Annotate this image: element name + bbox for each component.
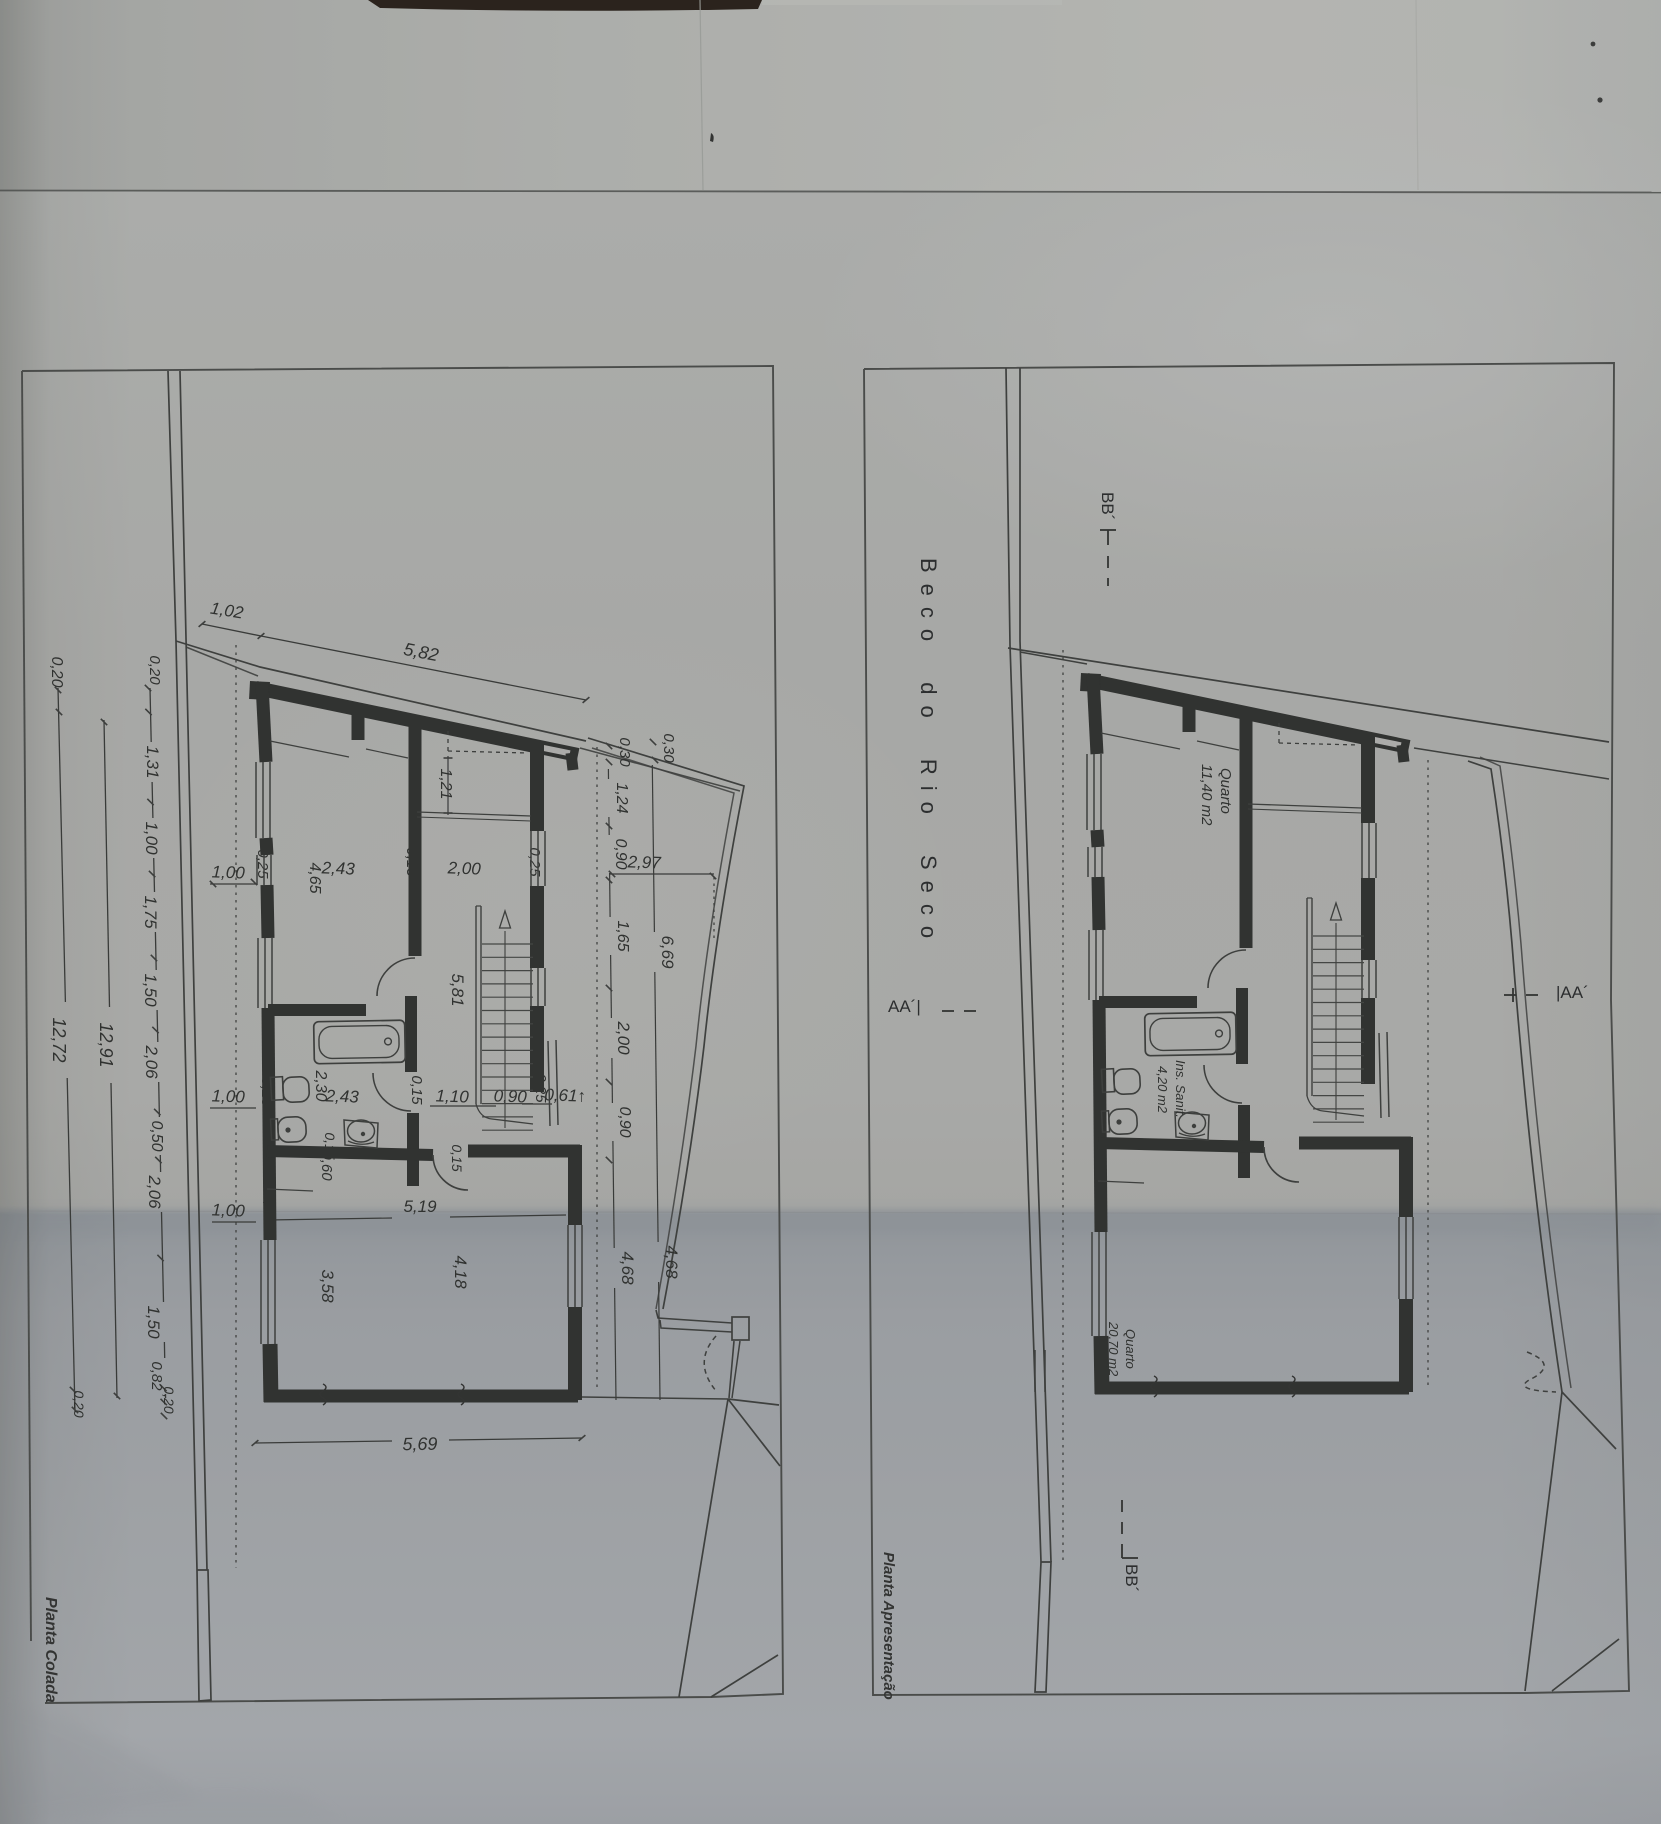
svg-text:Ins. Sanit.: Ins. Sanit. [1173,1060,1188,1118]
svg-text:12,72: 12,72 [49,1017,69,1062]
svg-text:BB´: BB´ [1098,492,1117,520]
svg-text:1,10: 1,10 [435,1086,469,1106]
svg-text:4,65: 4,65 [306,862,323,893]
svg-text:11,40 m2: 11,40 m2 [1198,764,1215,826]
svg-text:Quarto: Quarto [1217,768,1234,814]
svg-text:1,00: 1,00 [211,862,245,882]
svg-text:2,00: 2,00 [446,858,481,878]
svg-text:1,00: 1,00 [211,1200,245,1220]
svg-text:20,70 m2: 20,70 m2 [1106,1321,1121,1377]
svg-text:0,90: 0,90 [616,1106,633,1137]
svg-text:0,30: 0,30 [616,737,633,767]
svg-text:1,50: 1,50 [144,1305,163,1339]
svg-text:AA´|: AA´| [888,997,921,1016]
svg-text:1,21: 1,21 [437,768,454,799]
svg-text:BB´: BB´ [1122,1564,1141,1592]
svg-text:6,69: 6,69 [658,935,677,969]
svg-text:12,91: 12,91 [96,1022,116,1067]
svg-text:Beco do Rio Seco: Beco do Rio Seco [916,558,941,949]
svg-text:Planta Apresentação: Planta Apresentação [880,1552,897,1700]
svg-text:0,20: 0,20 [48,656,65,687]
svg-text:0,30: 0,30 [660,733,677,763]
svg-text:1,31: 1,31 [143,745,162,778]
svg-text:1,50: 1,50 [141,973,160,1007]
svg-text:5,69: 5,69 [402,1434,437,1455]
svg-text:2,06: 2,06 [142,1044,161,1079]
svg-text:1,00: 1,00 [211,1086,245,1106]
svg-text:4,18: 4,18 [451,1255,470,1289]
svg-text:2,97: 2,97 [626,852,661,872]
svg-text:3,58: 3,58 [318,1269,337,1303]
svg-text:5,81: 5,81 [448,973,467,1006]
svg-text:2,06: 2,06 [145,1174,164,1209]
svg-text:Quarto: Quarto [1123,1329,1138,1369]
svg-text:0,90: 0,90 [612,838,629,869]
svg-text:5,19: 5,19 [403,1197,437,1216]
svg-text:1,65: 1,65 [614,920,631,951]
svg-text:2,00: 2,00 [614,1020,633,1055]
svg-text:4,20 m2: 4,20 m2 [1155,1066,1170,1114]
svg-text:0,25: 0,25 [526,847,543,877]
svg-text:2,43: 2,43 [324,1086,359,1106]
svg-text:1,75: 1,75 [141,895,160,929]
svg-text:1,24: 1,24 [613,782,630,813]
svg-text:0,50: 0,50 [148,1120,165,1151]
svg-text:0,15: 0,15 [449,1144,465,1171]
svg-text:0,20: 0,20 [146,655,163,685]
svg-text:4,68: 4,68 [618,1251,637,1285]
svg-text:0,20: 0,20 [71,1390,87,1417]
svg-text:0,61↑: 0,61↑ [544,1085,586,1105]
svg-text:|AA´: |AA´ [1556,983,1589,1002]
svg-text:0,15: 0,15 [408,1075,425,1105]
svg-text:1,00: 1,00 [142,821,161,855]
svg-text:Planta Colada: Planta Colada [42,1597,59,1703]
svg-text:4,68: 4,68 [662,1245,681,1279]
svg-text:2,43: 2,43 [320,858,355,878]
svg-text:0,20: 0,20 [161,1386,177,1413]
